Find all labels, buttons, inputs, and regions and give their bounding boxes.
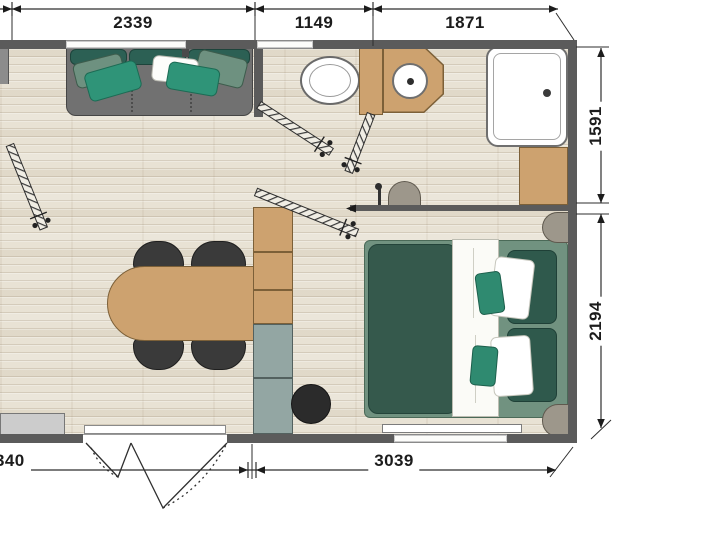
dim-label-bottom-left: 340: [0, 451, 31, 471]
shower-drain: [543, 89, 551, 97]
sheet-crease: [473, 248, 474, 318]
entrance-door-swing: [86, 443, 227, 508]
dim-label-top-wc: 1149: [295, 13, 333, 33]
wall-living-bath-divider: [254, 49, 263, 117]
toilet: [300, 56, 360, 105]
entrance-door-opening: [83, 434, 227, 443]
pouf: [388, 181, 421, 208]
dim-label-bottom-bedroom: 3039: [368, 451, 419, 471]
doormat: [0, 413, 65, 435]
window-bedroom: [394, 434, 507, 443]
entrance-threshold: [84, 425, 226, 434]
dimension-bottom: [0, 444, 573, 479]
cabinet-cell: [253, 324, 293, 378]
radiator: [382, 424, 522, 433]
dim-label-top-living: 2339: [113, 13, 152, 33]
shower-tray: [493, 53, 561, 140]
nightstand: [542, 404, 568, 437]
window-living: [66, 40, 186, 49]
bed-sheet-fold: [452, 239, 499, 417]
toilet-bowl: [309, 64, 351, 97]
sideboard-partial: [0, 49, 9, 84]
floor-plan: 2339 1149 1871 1591 2194 340 3039: [0, 0, 710, 533]
handle-knob: [375, 183, 382, 190]
cabinet-cell: [253, 290, 293, 324]
washbasin: [392, 63, 428, 99]
bed-pillow-teal: [469, 345, 498, 387]
wall-bracket: [182, 49, 189, 57]
dim-label-right-bedroom: 2194: [586, 296, 606, 345]
cabinet-cell: [253, 207, 293, 252]
wall-bath-bedroom-divider: [350, 205, 568, 211]
wall-right: [568, 40, 577, 443]
washbasin-drain: [407, 78, 414, 85]
stool: [291, 384, 331, 424]
cabinet-cell: [253, 252, 293, 290]
nightstand: [542, 212, 568, 243]
dim-label-right-bath: 1591: [586, 101, 606, 150]
bathroom-cabinet: [519, 147, 568, 205]
bed-duvet: [368, 244, 457, 414]
shower: [486, 46, 568, 147]
dining-table: [107, 266, 256, 341]
wc-partition: [359, 43, 383, 115]
dim-label-top-shower: 1871: [445, 13, 484, 33]
cabinet-cell: [253, 378, 293, 434]
window-wc: [257, 40, 313, 49]
